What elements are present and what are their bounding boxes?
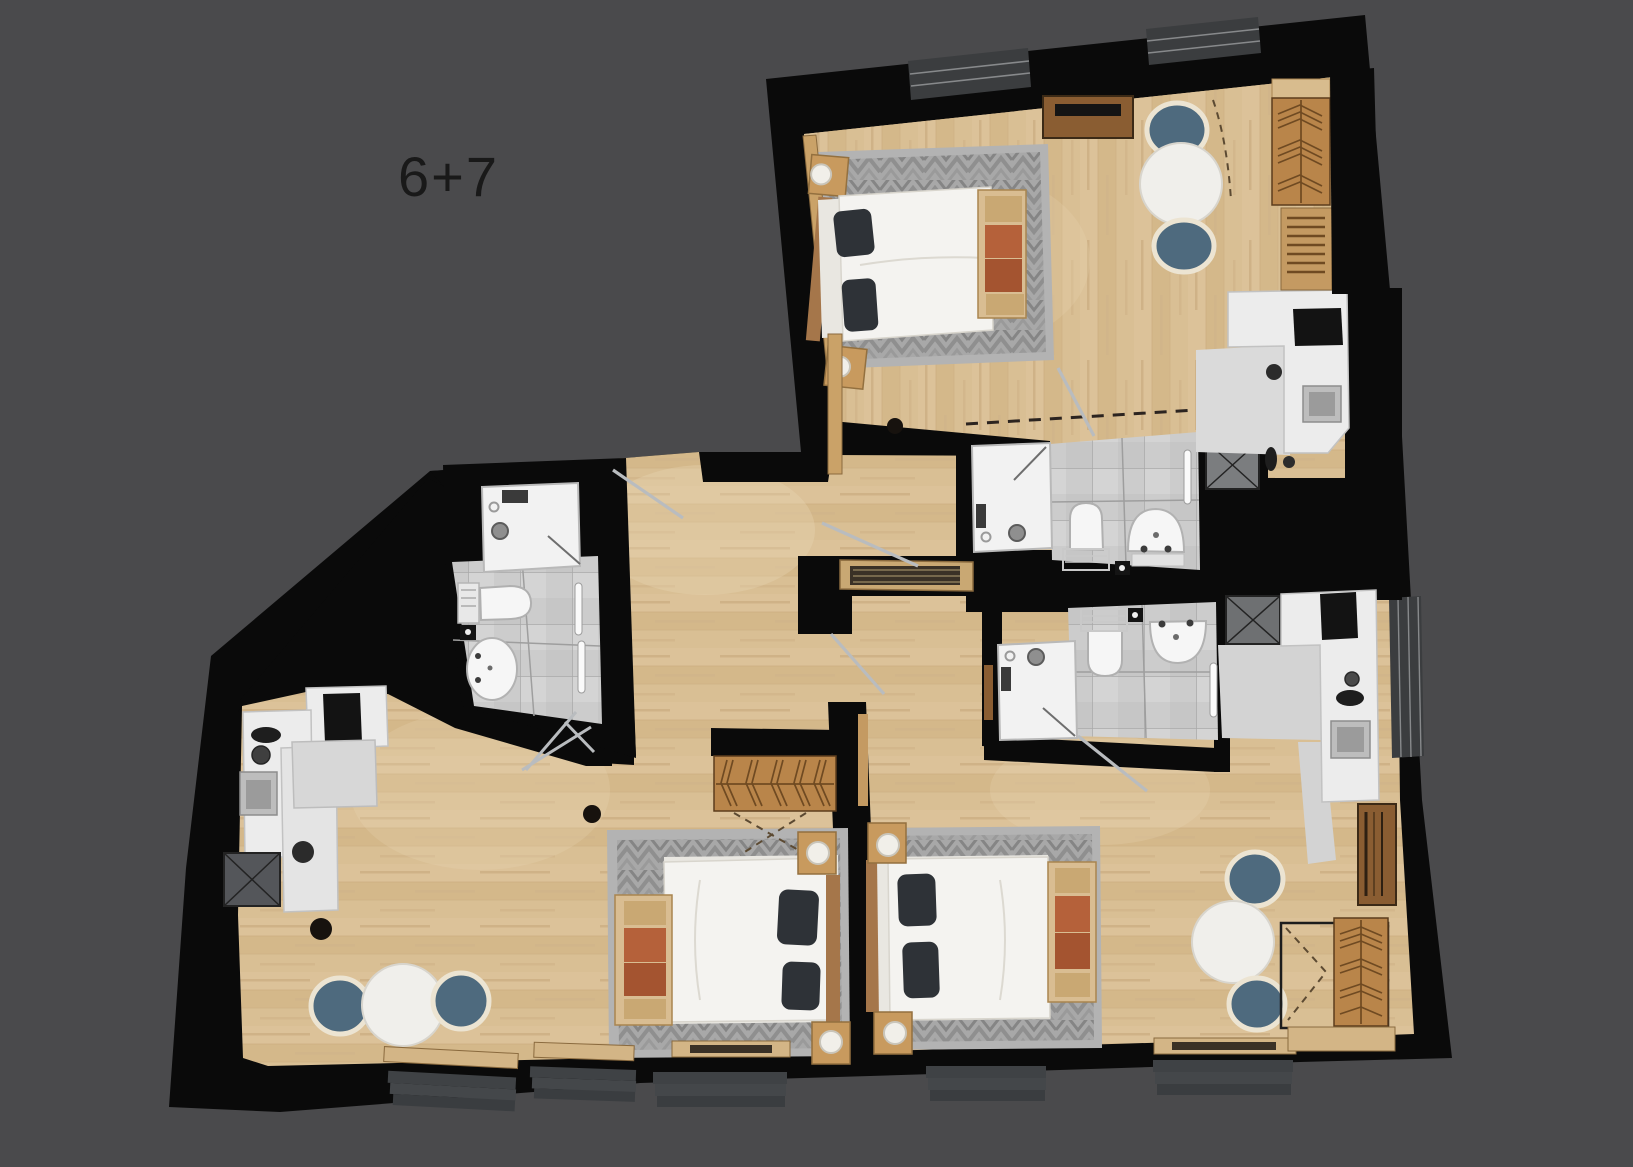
svg-text:6+7: 6+7 bbox=[398, 145, 499, 208]
